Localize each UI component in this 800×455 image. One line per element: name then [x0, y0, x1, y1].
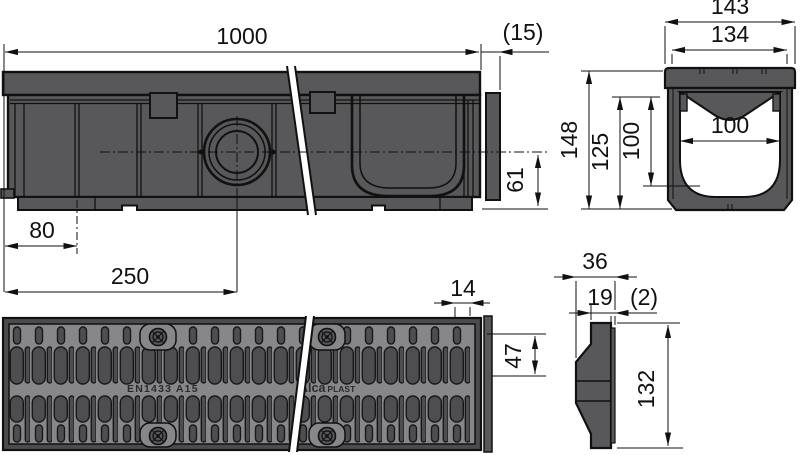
- grate-plan-view: EN1433 A15 AlcaPLAST 14 47: [3, 275, 546, 452]
- left-end-lip: [1, 189, 14, 198]
- standard-marking: EN1433 A15: [127, 383, 199, 395]
- dim-slot-pitch-label: 14: [450, 275, 476, 301]
- dim-top-inner-width-label: 134: [711, 21, 750, 47]
- side-elevation-view: 1000 (15) 61 80 250: [1, 19, 549, 292]
- dim-height-label: 132: [633, 370, 659, 408]
- dim-body-height-label: 125: [587, 133, 613, 171]
- dim-outlet-height-label: 61: [502, 167, 528, 193]
- dim-end-lip-label: (15): [503, 19, 544, 45]
- dim-inner-depth-label: 100: [618, 122, 644, 160]
- top-lug-left: [150, 93, 177, 118]
- end-cap-view: 36 19 (2) 132: [554, 248, 683, 448]
- screw-icon: [150, 329, 167, 346]
- screw-icon: [319, 428, 336, 445]
- end-cap-lip: [611, 328, 615, 443]
- grate-slot-pattern: [9, 326, 471, 444]
- screw-icon: [319, 329, 336, 346]
- dim-lip-label: (2): [630, 284, 658, 310]
- dim-edge-height-label: 47: [500, 343, 526, 369]
- side-end-lip: [486, 93, 500, 200]
- channel-top-rail: [3, 72, 480, 95]
- brand-marking: AlcaPLAST: [299, 381, 356, 395]
- screw-icon: [150, 428, 167, 445]
- technical-drawing-page: 1000 (15) 61 80 250 143 134 148 125: [0, 0, 800, 455]
- end-cap-profile: [576, 323, 611, 448]
- top-lug-right: [310, 92, 335, 113]
- section-cap: [665, 68, 795, 88]
- dim-outer-width-label: 143: [711, 0, 749, 19]
- dim-length-label: 1000: [216, 23, 267, 49]
- dim-outlet-center-label: 250: [111, 263, 149, 289]
- channel-feet: [18, 197, 472, 210]
- cross-section-view: 143 134 148 125 100 100: [556, 0, 795, 210]
- dim-outlet-offset-label: 80: [29, 217, 55, 243]
- grate-end-lip: [484, 316, 492, 452]
- dim-total-height-label: 148: [556, 121, 582, 159]
- dim-channel-width-label: 100: [711, 112, 749, 138]
- dim-depth-label: 36: [582, 248, 608, 274]
- drainage-channel-drawing: 1000 (15) 61 80 250 143 134 148 125: [0, 0, 800, 455]
